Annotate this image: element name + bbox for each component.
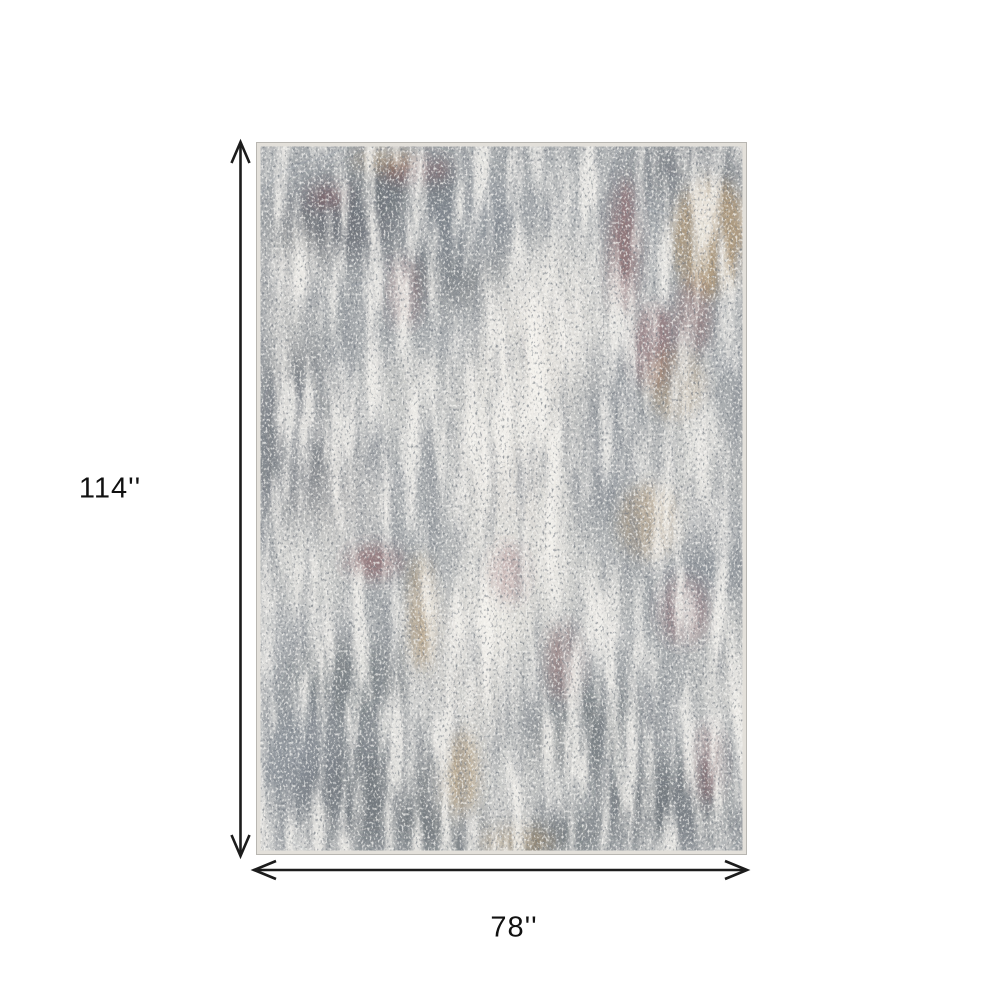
horizontal-dimension-arrow [254,861,747,879]
rug-light-speckle-texture [256,142,747,855]
arrow-up-icon [232,142,250,163]
product-diagram: 114'' 78'' [0,0,1000,1000]
arrow-down-icon [232,835,250,856]
arrow-right-icon [725,861,747,879]
height-dimension-label: 114'' [79,473,141,506]
rug-image [256,142,747,855]
arrow-left-icon [254,861,276,879]
vertical-dimension-arrow [232,142,250,856]
width-dimension-label: 78'' [490,912,537,945]
